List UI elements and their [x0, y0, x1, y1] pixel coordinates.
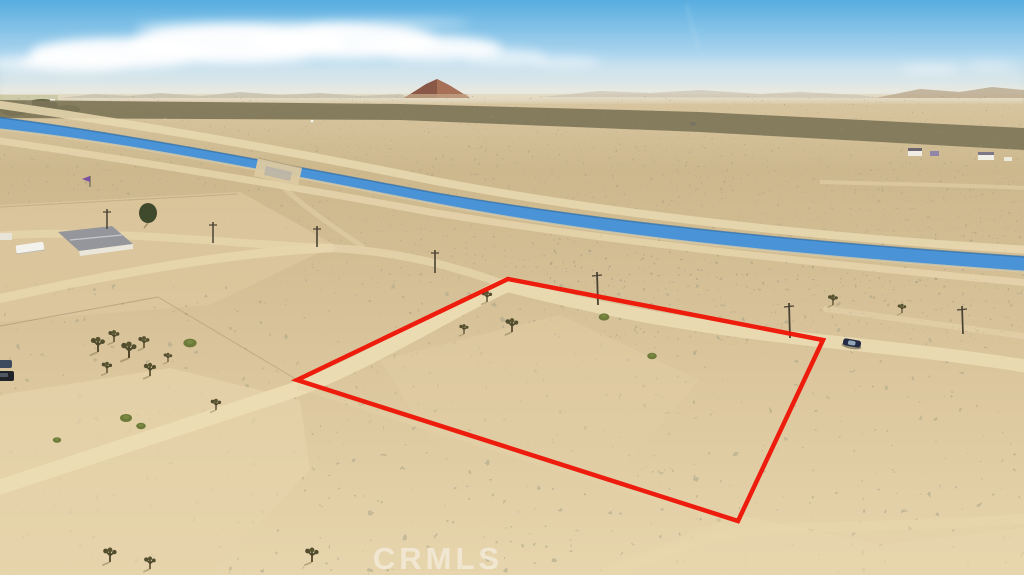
green-bush [120, 414, 132, 422]
green-bush [183, 339, 196, 348]
green-bush [136, 423, 146, 429]
green-bush [647, 353, 657, 359]
green-bush [53, 437, 61, 443]
watermark: CRMLS [373, 541, 503, 575]
shed-left [0, 233, 12, 240]
aerial-photo: CRMLS [0, 0, 1024, 575]
green-bush [599, 313, 610, 320]
